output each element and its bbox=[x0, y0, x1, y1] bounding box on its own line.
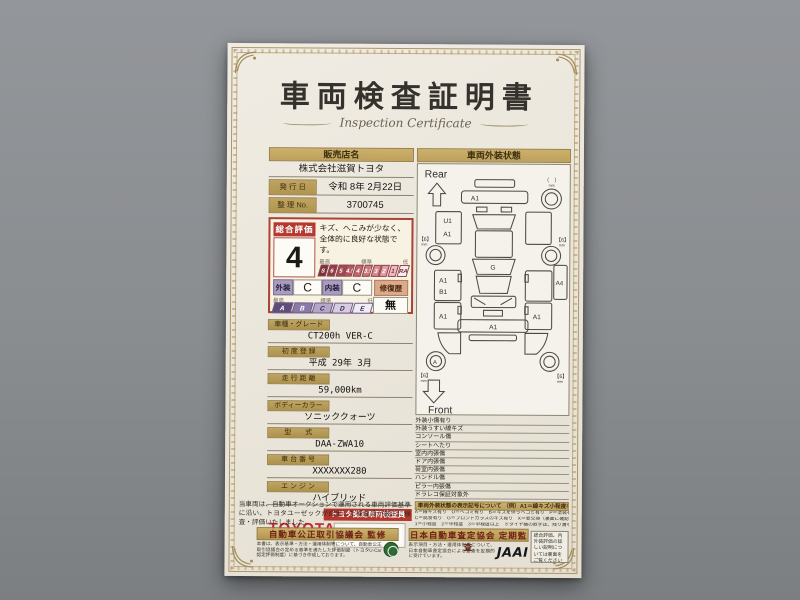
field-label: 走 行 距 離 bbox=[268, 373, 330, 384]
car-exterior-diagram: Rear Front A1 U1 A1 A1 B1 A1 A4 A1 G A1 … bbox=[415, 163, 571, 416]
field-label: 車 台 番 号 bbox=[267, 454, 329, 465]
repair-history-value: 無 bbox=[373, 297, 408, 314]
field-label: 初 度 登 録 bbox=[268, 346, 330, 357]
certificate-title: 車両検査証明書 bbox=[227, 71, 584, 117]
panel-label-left-door-rear: A1 bbox=[439, 314, 447, 321]
fair-trade-note: 本書は、表示基準・方法・運用体制等について、自動車公正取引協議会の定める基準を満… bbox=[256, 541, 381, 559]
exterior-condition-header: 車両外装状態 bbox=[417, 148, 571, 163]
rear-direction-label: Rear bbox=[425, 169, 448, 180]
field-body-color: ボディーカラー ソニッククォーツ bbox=[267, 400, 412, 425]
interior-grade: C bbox=[342, 280, 372, 296]
front-direction-label: Front bbox=[428, 405, 452, 415]
issue-date-label: 発 行 日 bbox=[269, 179, 317, 195]
exterior-label: 外装 bbox=[273, 279, 293, 295]
grade-scale-band: S 6 5 4.5 4 3.5 3 2 1 RA/R bbox=[319, 264, 409, 277]
field-value: ソニッククォーツ bbox=[267, 411, 412, 425]
field-model-code: 型 式 DAA-ZWA10 bbox=[267, 427, 412, 452]
panel-label-left-quarter-top: U1 bbox=[443, 218, 452, 225]
footer: 自動車公正取引協議会 監修 本書は、表示基準・方法・運用体制等について、自動車公… bbox=[238, 527, 568, 566]
jaai-note: 表示項目・方法・運用体制等について、日本自動車査定協会による監査を定期的に受けて… bbox=[408, 542, 494, 560]
dealer-name: 株式会社滋賀トヨタ bbox=[269, 161, 414, 178]
scale-cell: RA/R bbox=[396, 265, 410, 277]
field-chassis-no: 車 台 番 号 XXXXXXX280 bbox=[267, 454, 412, 479]
wheel-label-front-left: A bbox=[433, 360, 437, 366]
issue-date-value: 令和 8年 2月22日 bbox=[317, 179, 414, 196]
dealer-header: 販売店名 bbox=[269, 147, 414, 162]
flourish-right bbox=[480, 121, 528, 126]
field-model-grade: 車種・グレード CT200h VER-C bbox=[268, 319, 413, 344]
certificate-subtitle: Inspection Certificate bbox=[340, 116, 472, 131]
symbols-example-text: （例）A1＝線キズ小程度有り bbox=[503, 503, 569, 509]
tire-depth-unit: mm bbox=[421, 243, 427, 247]
overall-evaluation-label: 総合評価 bbox=[273, 222, 315, 236]
spare-tire-unit: mm bbox=[549, 184, 555, 188]
letter-cell: B bbox=[291, 302, 313, 313]
serial-no-value: 3700745 bbox=[317, 197, 414, 214]
car-diagram-icon: Rear Front A1 U1 A1 A1 B1 A1 A4 A1 G A1 … bbox=[416, 164, 570, 415]
panel-label-front-bumper: A1 bbox=[489, 324, 497, 331]
panel-label-right-quarter: A4 bbox=[556, 280, 564, 287]
panel-label-left-door-b: B1 bbox=[439, 289, 447, 296]
tire-depth-unit: mm bbox=[421, 379, 427, 383]
field-first-registration: 初 度 登 録 平成 29年 3月 bbox=[268, 346, 413, 371]
symbols-legend: 車両外装状態の表示記号について （例）A1＝線キズ小程度有り A＝線キズ有り U… bbox=[415, 501, 569, 530]
letter-cell: A bbox=[271, 302, 293, 313]
field-value: XXXXXXX280 bbox=[267, 465, 412, 479]
fair-trade-body: 本書は、表示基準・方法・運用体制等について、自動車公正取引協議会の定める基準を満… bbox=[256, 541, 398, 559]
fair-trade-emblem-icon bbox=[383, 542, 398, 557]
exterior-grade: C bbox=[293, 279, 323, 295]
letter-scale-band: A B C D E bbox=[273, 302, 373, 314]
tire-depth-unit: mm bbox=[559, 243, 565, 247]
repair-history-label: 修復歴 bbox=[374, 280, 409, 296]
panel-label-windshield: G bbox=[490, 265, 495, 272]
inspection-certificate-document: 車両検査証明書 Inspection Certificate 販売店名 株式会社… bbox=[224, 43, 584, 578]
letter-cell: D bbox=[331, 303, 353, 314]
see-reverse-note: 総合評価、内外装評価の詳しい説明については裏面をご覧ください bbox=[530, 531, 568, 563]
overall-grade: 4 bbox=[273, 237, 315, 277]
fair-trade-title: 自動車公正取引協議会 監修 bbox=[257, 527, 399, 541]
field-label: ボディーカラー bbox=[267, 400, 329, 411]
vehicle-info-column: 販売店名 株式会社滋賀トヨタ 発 行 日 令和 8年 2月22日 整 理 No.… bbox=[267, 147, 414, 549]
field-value: CT200h VER-C bbox=[268, 330, 413, 344]
field-value: DAA-ZWA10 bbox=[267, 438, 412, 452]
certificate-subtitle-row: Inspection Certificate bbox=[227, 115, 584, 131]
issue-date-row: 発 行 日 令和 8年 2月22日 bbox=[269, 179, 414, 196]
panel-label-rear-bumper: A1 bbox=[471, 195, 479, 202]
field-label: 型 式 bbox=[267, 427, 329, 438]
field-label: 車種・グレード bbox=[268, 319, 330, 330]
panel-label-right-door: A1 bbox=[533, 314, 541, 321]
jaai-title: 日本自動車査定協会 定期監査 bbox=[409, 528, 529, 542]
field-mileage: 走 行 距 離 59,000km bbox=[267, 373, 412, 398]
evaluation-disclaimer: 当車両は、自動車オークションで運用される車両評価基準に沿い、トヨタユーゼックが認… bbox=[239, 501, 411, 529]
flourish-left bbox=[284, 120, 332, 125]
letter-cell: C bbox=[311, 302, 333, 313]
jaai-banner: 日本自動車査定協会 定期監査 表示項目・方法・運用体制等について、日本自動車査定… bbox=[408, 528, 528, 561]
interior-label: 内装 bbox=[322, 279, 342, 295]
symbols-title-text: 車両外装状態の表示記号について bbox=[418, 503, 502, 510]
memo-item: ドラレコ保証対象外 bbox=[415, 491, 569, 500]
vehicle-fields: 車種・グレード CT200h VER-C 初 度 登 録 平成 29年 3月 走… bbox=[267, 319, 413, 506]
field-label: エ ン ジ ン bbox=[267, 481, 329, 492]
field-value: 平成 29年 3月 bbox=[268, 357, 413, 371]
jaai-body: 表示項目・方法・運用体制等について、日本自動車査定協会による監査を定期的に受けて… bbox=[408, 542, 528, 561]
condition-memo-list: 外装小傷有り 外装うすい線キズ コンソール傷 シートへたり 室内内張傷 ドア内張… bbox=[415, 417, 569, 500]
field-value: 59,000km bbox=[267, 384, 412, 398]
tire-depth-unit: mm bbox=[557, 380, 563, 384]
overall-evaluation-box: 総合評価 4 キズ、へこみが少なく、全体的に良好な状態です。 最高 標準 低 S… bbox=[268, 217, 414, 314]
exterior-condition-column: 車両外装状態 bbox=[415, 148, 571, 530]
evaluation-comment: キズ、へこみが少なく、全体的に良好な状態です。 bbox=[319, 223, 408, 256]
exterior-interior-row: 外装 C 内装 C 修復歴 bbox=[273, 279, 408, 296]
panel-label-left-quarter: A1 bbox=[443, 231, 451, 238]
serial-no-label: 整 理 No. bbox=[269, 197, 317, 213]
panel-label-left-door-a: A1 bbox=[439, 278, 447, 285]
letter-cell: E bbox=[351, 303, 373, 314]
serial-no-row: 整 理 No. 3700745 bbox=[269, 197, 414, 214]
jaai-logo: JAAI bbox=[497, 546, 529, 561]
fair-trade-banner: 自動車公正取引協議会 監修 本書は、表示基準・方法・運用体制等について、自動車公… bbox=[256, 527, 398, 559]
